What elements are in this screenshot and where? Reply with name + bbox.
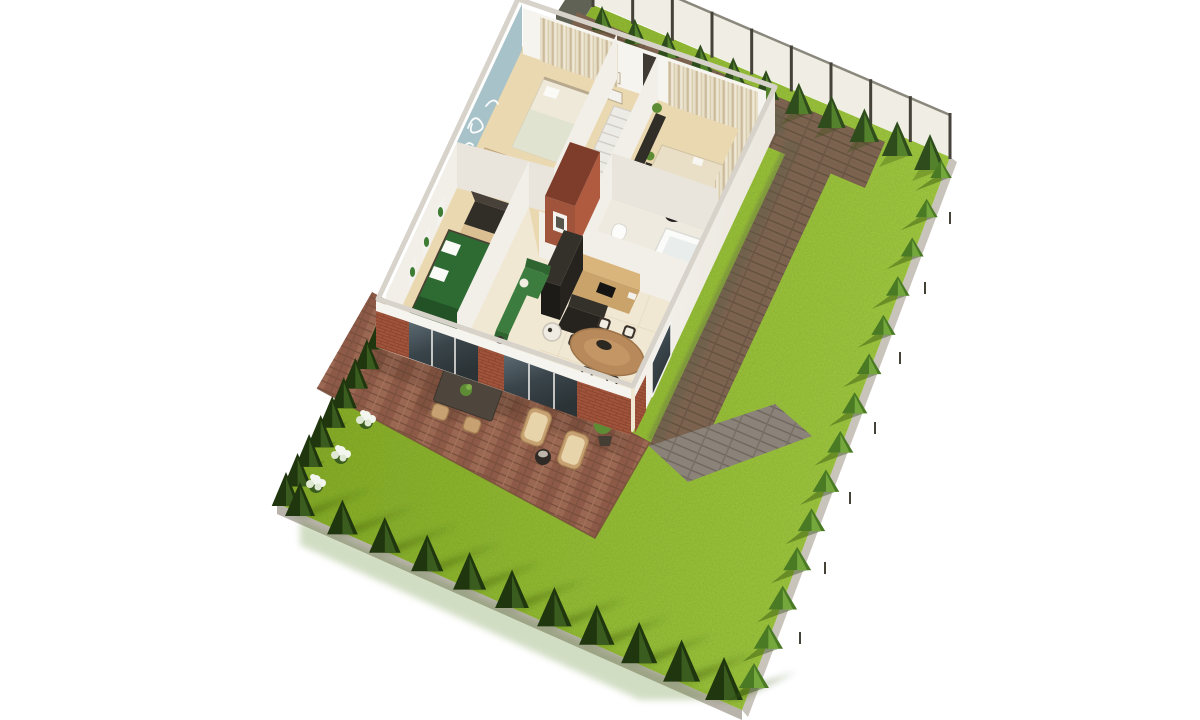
- flower-cluster: [331, 451, 339, 459]
- fence-post-icon: [711, 12, 714, 58]
- fence-post-icon: [874, 422, 876, 434]
- fence-post-icon: [869, 79, 872, 125]
- fence-post-icon: [949, 113, 952, 159]
- round-side-table: [543, 323, 561, 341]
- flower-cluster: [365, 420, 372, 427]
- office-plant: [652, 103, 662, 113]
- fence-post-icon: [750, 29, 753, 75]
- fence-post-icon: [849, 492, 851, 504]
- flower-cluster: [315, 484, 322, 491]
- fence-post-icon: [949, 212, 951, 224]
- fence-post-icon: [592, 0, 595, 7]
- fence-post-icon: [631, 0, 634, 24]
- fence-post-icon: [790, 45, 793, 91]
- fence-post-icon: [671, 0, 674, 41]
- table-plant-highlight: [466, 384, 472, 390]
- flower-cluster: [306, 480, 314, 488]
- plant-pot: [598, 436, 612, 446]
- flower-cluster: [360, 410, 366, 416]
- fence-post-icon: [824, 562, 826, 574]
- flower-cluster: [310, 474, 316, 480]
- garden-plot-render: [0, 0, 1200, 720]
- side-table-tray: [538, 451, 548, 458]
- scene-svg: [0, 0, 1200, 720]
- flower-cluster: [340, 455, 347, 462]
- fence-post-icon: [924, 282, 926, 294]
- sofa-pillow: [520, 279, 529, 288]
- flower-cluster: [335, 445, 341, 451]
- fence-post-icon: [899, 352, 901, 364]
- fence-post-icon: [799, 632, 801, 644]
- fence-post-icon: [909, 96, 912, 142]
- side-table-decor: [548, 328, 552, 332]
- flower-cluster: [356, 416, 364, 424]
